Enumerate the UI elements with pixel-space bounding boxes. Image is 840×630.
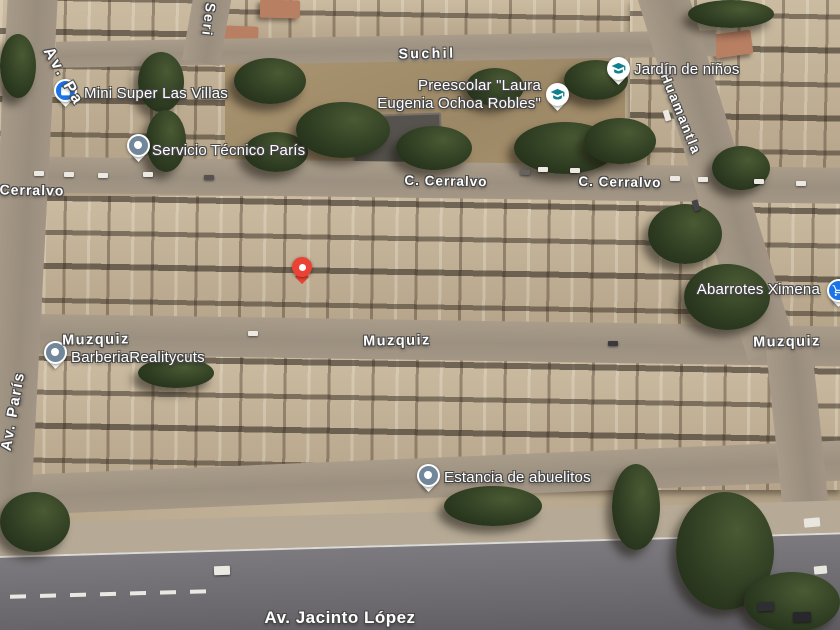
vehicle — [793, 612, 811, 623]
tree — [648, 204, 722, 264]
pin-circle — [127, 134, 150, 157]
street-label-av-jacinto-lopez: Av. Jacinto López — [264, 608, 415, 628]
poi-label-estancia[interactable]: Estancia de abuelitos — [444, 469, 591, 487]
vehicle — [204, 175, 214, 180]
pin-circle — [546, 83, 569, 106]
pin-circle — [417, 464, 440, 487]
generic-dot-icon — [424, 471, 432, 479]
school-icon — [550, 87, 565, 102]
tree — [234, 58, 306, 104]
tree — [612, 464, 660, 550]
road-marking — [804, 517, 821, 527]
poi-label-servicio-tecnico[interactable]: Servicio Técnico París — [152, 142, 305, 160]
vehicle — [698, 177, 708, 182]
tree — [146, 110, 186, 172]
poi-label-jardin-de-ninos[interactable]: Jardín de niños — [634, 61, 740, 79]
shopping-cart-icon — [832, 284, 840, 297]
building-roof — [260, 0, 300, 18]
pin-circle — [607, 57, 630, 80]
map-canvas[interactable]: Av. Pa Seri Suchil C. Cerralvo C. Cerral… — [0, 0, 840, 630]
poi-label-line: Preescolar "Laura — [418, 77, 541, 94]
vehicle — [758, 602, 774, 612]
tree — [396, 126, 472, 170]
poi-label-mini-super[interactable]: Mini Super Las Villas — [84, 85, 228, 103]
poi-label-barberia[interactable]: BarberiaRealitycuts — [71, 349, 205, 367]
marker-circle — [292, 257, 312, 277]
poi-label-preescolar[interactable]: Preescolar "Laura Eugenia Ochoa Robles" — [377, 77, 541, 113]
vehicle — [64, 172, 74, 177]
vehicle — [754, 179, 764, 184]
road-marking — [814, 565, 828, 574]
vehicle — [143, 172, 153, 177]
marker-dot — [299, 264, 306, 271]
poi-label-line: Eugenia Ochoa Robles" — [377, 95, 541, 112]
tree — [296, 102, 390, 158]
street-label-muzquiz-right: Muzquiz — [753, 333, 821, 350]
vehicle — [608, 341, 618, 346]
generic-dot-icon — [51, 348, 59, 356]
vehicle — [98, 173, 108, 178]
street-label-c-cerralvo-2: C. Cerralvo — [578, 174, 661, 190]
street-label-muzquiz-left: Muzquiz — [62, 331, 130, 348]
street-label-c-cerralvo-1: C. Cerralvo — [404, 173, 487, 189]
tree — [744, 572, 840, 630]
tree — [0, 492, 70, 552]
vehicle — [570, 168, 580, 173]
vehicle — [214, 566, 230, 576]
generic-dot-icon — [134, 141, 142, 149]
vehicle — [248, 331, 258, 336]
tree — [444, 486, 542, 526]
tree — [138, 52, 184, 112]
tree — [0, 34, 36, 98]
vehicle — [34, 171, 44, 176]
school-icon — [611, 61, 626, 76]
vehicle — [520, 170, 530, 175]
tree — [584, 118, 656, 164]
vehicle — [670, 176, 680, 181]
vehicle — [538, 167, 548, 172]
street-label-muzquiz-center: Muzquiz — [363, 332, 431, 349]
street-label-suchil: Suchil — [398, 45, 455, 62]
street-label-cerralvo: Cerralvo — [0, 181, 65, 198]
poi-label-abarrotes-ximena[interactable]: Abarrotes Ximena — [697, 281, 820, 299]
vehicle — [796, 181, 806, 186]
tree — [688, 0, 774, 28]
